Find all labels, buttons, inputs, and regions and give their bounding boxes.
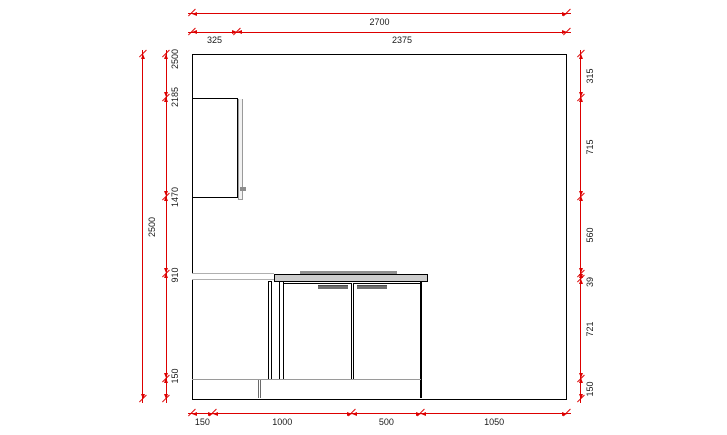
dim-chain-right-heights: 31571556039721150 (0, 0, 727, 435)
dim-line (580, 50, 581, 403)
dim-label: 315 (585, 68, 595, 83)
dim-arrowhead-icon (579, 273, 583, 278)
dim-label: 560 (585, 227, 595, 242)
dim-label: 721 (585, 321, 595, 336)
dim-arrowhead-icon (579, 279, 583, 284)
elevation-drawing: 2700325237515010005001050250015091014702… (0, 0, 727, 435)
dim-label: 39 (585, 277, 595, 287)
dim-arrowhead-icon (579, 394, 583, 399)
dim-arrowhead-icon (579, 97, 583, 102)
dim-label: 150 (585, 381, 595, 396)
dim-arrowhead-icon (579, 54, 583, 59)
dim-arrowhead-icon (579, 196, 583, 201)
dimension-layer: 2700325237515010005001050250015091014702… (0, 0, 727, 435)
dim-label: 715 (585, 139, 595, 154)
dim-arrowhead-icon (579, 378, 583, 383)
